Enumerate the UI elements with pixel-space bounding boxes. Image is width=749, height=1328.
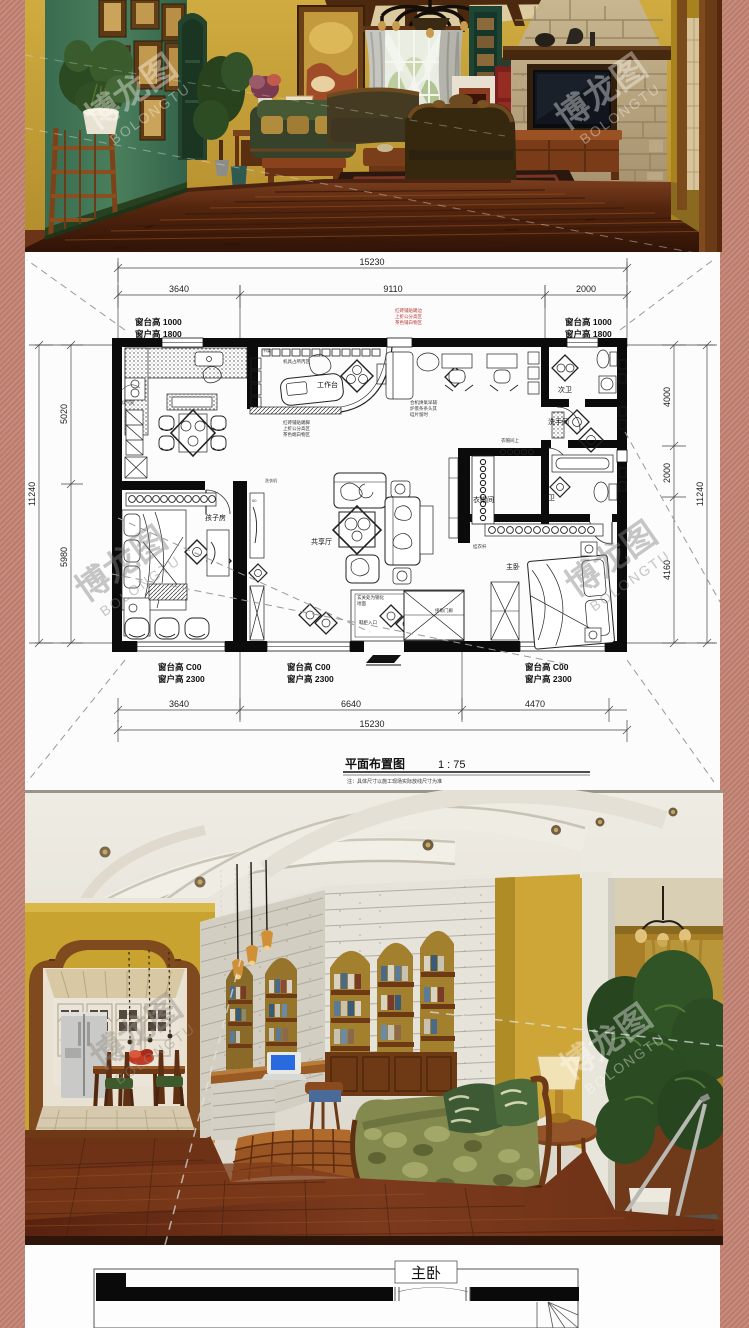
- svg-text:1 : 75: 1 : 75: [438, 759, 466, 771]
- svg-text:主卧: 主卧: [411, 1265, 441, 1282]
- svg-text:炉景条条头其: 炉景条条头其: [410, 405, 437, 412]
- svg-text:共享厅: 共享厅: [311, 537, 332, 546]
- svg-text:合机焕氧早辅: 合机焕氧早辅: [410, 399, 437, 406]
- svg-text:孩子房: 孩子房: [205, 513, 226, 522]
- svg-text:窗台高 C00: 窗台高 C00: [158, 662, 202, 672]
- svg-text:11240: 11240: [27, 482, 37, 506]
- svg-text:茶色铺白物区: 茶色铺白物区: [395, 319, 422, 326]
- svg-text:窗户高 2300: 窗户高 2300: [525, 674, 572, 684]
- svg-text:上折公分高区: 上折公分高区: [283, 425, 310, 432]
- svg-text:15230: 15230: [359, 719, 384, 729]
- svg-text:书架: 书架: [263, 347, 271, 353]
- svg-text:00: 00: [252, 498, 257, 503]
- svg-text:红砖铺贴踢脚: 红砖铺贴踢脚: [283, 419, 310, 426]
- svg-text:茶色端白物区: 茶色端白物区: [283, 431, 310, 438]
- svg-text:机具占所丙区: 机具占所丙区: [283, 358, 310, 365]
- svg-text:鞋柜入口: 鞋柜入口: [359, 619, 377, 626]
- svg-text:3640: 3640: [169, 284, 189, 294]
- svg-text:窗台高 1000: 窗台高 1000: [135, 317, 182, 327]
- svg-text:11240: 11240: [695, 482, 705, 506]
- svg-text:4470: 4470: [525, 699, 545, 709]
- svg-text:5980: 5980: [59, 547, 69, 567]
- svg-text:窗台高 C00: 窗台高 C00: [287, 662, 331, 672]
- svg-text:工作台: 工作台: [317, 380, 338, 389]
- svg-text:上折公分高区: 上折公分高区: [395, 313, 422, 320]
- svg-text:2000: 2000: [576, 284, 596, 294]
- svg-text:注：具体尺寸以施工现场实际放线尺寸为准: 注：具体尺寸以施工现场实际放线尺寸为准: [347, 778, 442, 785]
- svg-text:窗户高 2300: 窗户高 2300: [158, 674, 205, 684]
- svg-text:玄关处为钢化: 玄关处为钢化: [357, 594, 384, 601]
- svg-text:窗户高 1800: 窗户高 1800: [565, 329, 612, 339]
- svg-text:煤气表: 煤气表: [122, 399, 134, 405]
- svg-text:窗台高 1000: 窗台高 1000: [565, 317, 612, 327]
- svg-text:4000: 4000: [662, 387, 672, 407]
- svg-text:洗手间: 洗手间: [548, 417, 569, 426]
- svg-text:窗户高 1800: 窗户高 1800: [135, 329, 182, 339]
- svg-text:主卫: 主卫: [541, 493, 555, 502]
- svg-text:衣帽间上: 衣帽间上: [501, 437, 519, 444]
- svg-text:洗衣机: 洗衣机: [265, 477, 277, 483]
- svg-text:窗户高 2300: 窗户高 2300: [287, 674, 334, 684]
- svg-text:9110: 9110: [383, 284, 402, 294]
- svg-text:衣帽间: 衣帽间: [473, 495, 494, 504]
- svg-text:地面: 地面: [357, 600, 366, 607]
- svg-text:15230: 15230: [359, 257, 384, 267]
- svg-text:2000: 2000: [662, 463, 672, 483]
- svg-text:挂衣杆: 挂衣杆: [473, 543, 487, 550]
- svg-text:拐角门廊: 拐角门廊: [435, 607, 453, 614]
- svg-text:6640: 6640: [341, 699, 361, 709]
- svg-text:3640: 3640: [169, 699, 189, 709]
- svg-text:主卧: 主卧: [506, 562, 520, 571]
- svg-text:平面布置图: 平面布置图: [345, 756, 405, 771]
- svg-text:5020: 5020: [59, 404, 69, 424]
- svg-text:红砖铺贴踢边: 红砖铺贴踢边: [395, 307, 422, 314]
- svg-text:次卫: 次卫: [558, 385, 572, 394]
- svg-text:硅片留时: 硅片留时: [410, 411, 428, 418]
